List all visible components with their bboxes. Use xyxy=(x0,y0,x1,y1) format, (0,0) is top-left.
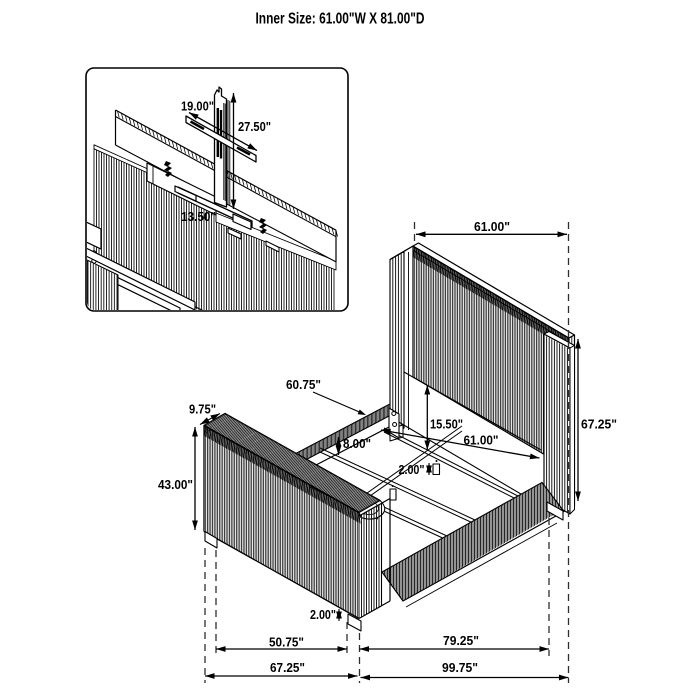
svg-text:27.50": 27.50" xyxy=(238,120,271,134)
svg-text:8.00": 8.00" xyxy=(343,437,371,451)
svg-text:61.00": 61.00" xyxy=(464,434,499,448)
svg-text:61.00": 61.00" xyxy=(474,220,510,234)
svg-text:19.00": 19.00" xyxy=(181,99,214,113)
svg-text:43.00": 43.00" xyxy=(158,478,193,492)
svg-text:79.25": 79.25" xyxy=(443,634,479,648)
svg-text:2.00": 2.00" xyxy=(399,463,425,477)
svg-text:67.25": 67.25" xyxy=(581,418,617,432)
svg-text:15.50": 15.50" xyxy=(430,418,463,432)
svg-text:99.75": 99.75" xyxy=(442,661,478,675)
svg-text:60.75": 60.75" xyxy=(286,378,321,392)
svg-text:50.75": 50.75" xyxy=(269,636,304,650)
svg-text:2.00": 2.00" xyxy=(310,608,336,622)
svg-text:67.25": 67.25" xyxy=(270,661,305,675)
svg-text:Inner Size: 61.00"W X 81.00"D: Inner Size: 61.00"W X 81.00"D xyxy=(256,11,425,28)
svg-text:9.75": 9.75" xyxy=(189,403,216,417)
svg-text:13.50": 13.50" xyxy=(181,210,216,224)
